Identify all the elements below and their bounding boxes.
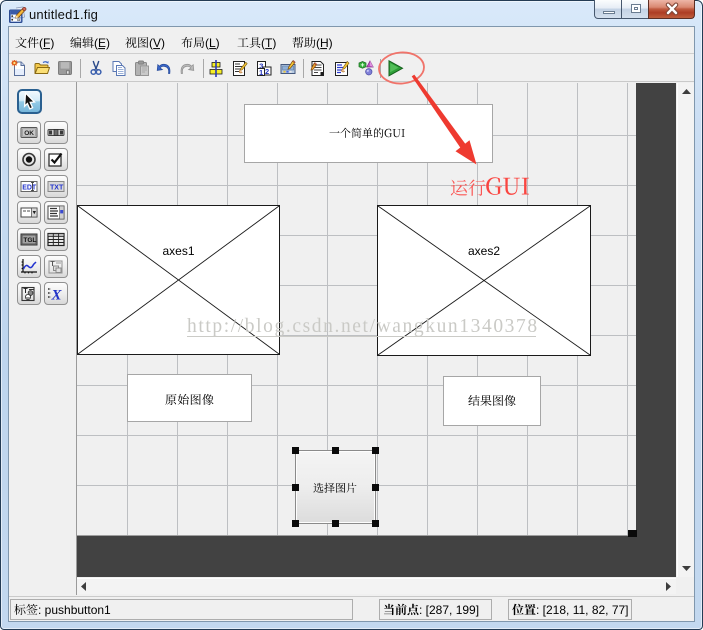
- svg-text:T: T: [23, 288, 28, 295]
- svg-text:(V): (V): [149, 36, 165, 50]
- svg-text:: [287, 199]: : [287, 199]: [419, 603, 479, 617]
- svg-text:: [218, 11, 82, 77]: : [218, 11, 82, 77]: [536, 603, 629, 617]
- svg-text:(T): (T): [261, 36, 276, 50]
- svg-text:2: 2: [265, 67, 269, 76]
- svg-text:TGL: TGL: [23, 237, 36, 244]
- svg-text:1: 1: [259, 68, 263, 77]
- svg-text:(L): (L): [205, 36, 220, 50]
- svg-text:http://blog.csdn.net/wangkun13: http://blog.csdn.net/wangkun1340378: [187, 316, 539, 337]
- svg-text:(E): (E): [94, 36, 110, 50]
- svg-text:(F): (F): [39, 36, 54, 50]
- svg-text:OK: OK: [24, 130, 34, 137]
- svg-text:TXT: TXT: [50, 184, 64, 191]
- svg-text:(H): (H): [316, 36, 333, 50]
- svg-text:: pushbutton1: : pushbutton1: [38, 603, 111, 617]
- svg-text:EDT: EDT: [22, 184, 37, 191]
- svg-text:X: X: [51, 288, 63, 303]
